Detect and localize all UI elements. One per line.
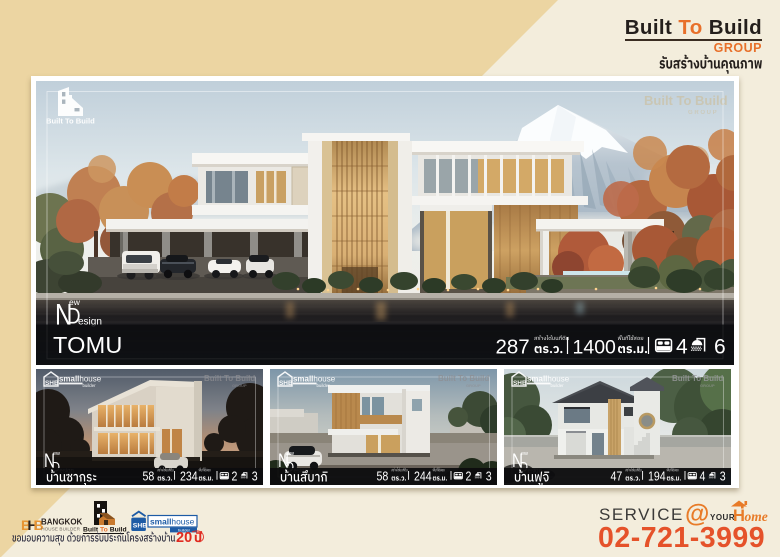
svg-text:HOUSE BUILDER: HOUSE BUILDER [41,527,80,532]
svg-text:244: 244 [414,470,432,483]
svg-text:YOUR: YOUR [710,513,735,522]
svg-text:ew: ew [521,450,528,456]
svg-text:4: 4 [699,470,705,483]
svg-text:ew: ew [287,450,294,456]
svg-text:02-721-3999: 02-721-3999 [598,522,765,554]
svg-text:G R O U P: G R O U P [688,110,717,116]
svg-text:3: 3 [252,470,258,483]
svg-text:builder: builder [550,382,564,387]
svg-text:58: 58 [142,470,154,483]
svg-text:234: 234 [180,470,198,483]
svg-text:3: 3 [719,470,725,483]
svg-text:47: 47 [610,470,622,483]
svg-text:Built To Build: Built To Build [644,93,728,108]
svg-text:SHB: SHB [279,380,293,387]
svg-text:2: 2 [231,470,237,483]
svg-text:builder: builder [316,382,330,387]
svg-text:ew: ew [53,450,60,456]
svg-text:287: 287 [496,335,530,358]
svg-text:SHB: SHB [133,523,147,530]
svg-text:TOMU: TOMU [53,332,123,358]
svg-text:6: 6 [714,335,726,358]
svg-text:Built To Build: Built To Build [438,374,489,383]
svg-text:58: 58 [376,470,388,483]
svg-text:GROUP: GROUP [700,383,715,388]
svg-text:194: 194 [648,470,666,483]
svg-text:2: 2 [465,470,471,483]
svg-text:Built To Build: Built To Build [46,116,95,125]
svg-text:GROUP: GROUP [232,383,247,388]
svg-text:BANGKOK: BANGKOK [41,518,83,527]
svg-text:1400: 1400 [573,336,617,358]
svg-text:Built To Build: Built To Build [672,374,723,383]
svg-text:SHB: SHB [513,380,527,387]
svg-text:SHB: SHB [45,380,59,387]
svg-text:4: 4 [676,335,688,358]
svg-text:Built To Build: Built To Build [204,374,255,383]
svg-text:3: 3 [486,470,492,483]
svg-text:builder: builder [82,382,96,387]
svg-text:20: 20 [176,530,192,546]
svg-text:smallhouse: smallhouse [150,517,195,527]
svg-text:GROUP: GROUP [466,383,481,388]
